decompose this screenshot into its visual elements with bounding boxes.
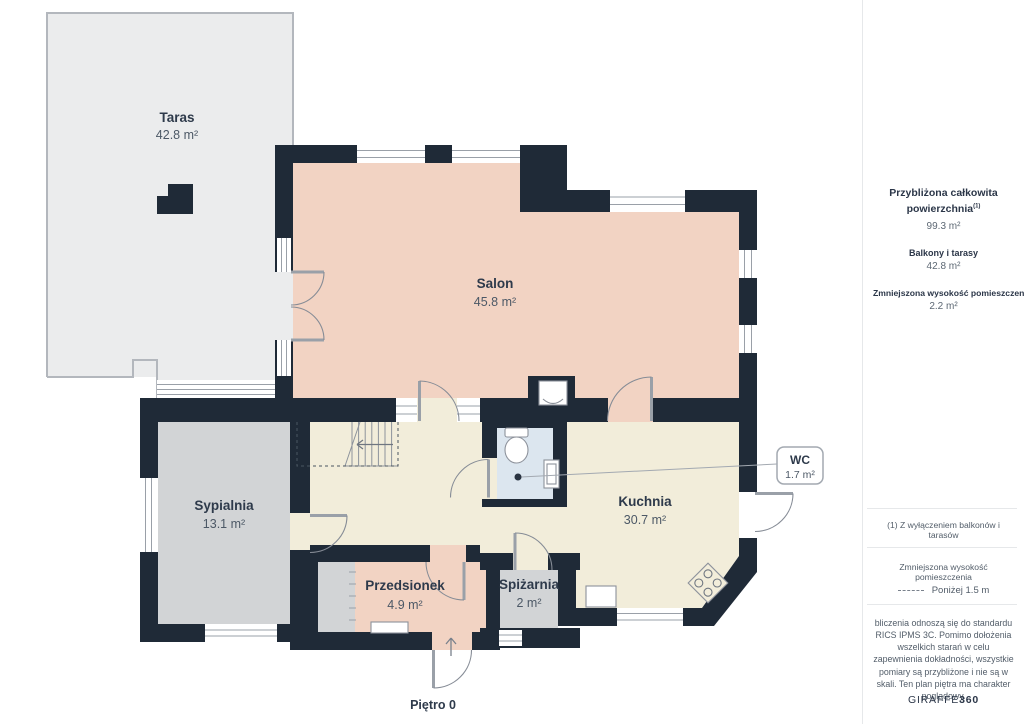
room-label-spizarnia: Spiżarnia [499, 577, 560, 592]
total-area-value: 99.3 m² [873, 221, 1014, 232]
room-label-salon: Salon [477, 276, 514, 291]
wc-marker-dot [515, 474, 522, 481]
balconies-label: Balkony i tarasy [873, 248, 1014, 258]
room-area-taras: 42.8 m² [156, 128, 198, 142]
footnote-text: (1) Z wyłączeniem balkonów i tarasów [863, 520, 1024, 540]
sink-icon [544, 460, 559, 488]
terrace-window [157, 380, 278, 399]
fireplace-icon [539, 381, 567, 405]
window [610, 190, 685, 212]
wc-room [497, 428, 559, 499]
divider [867, 604, 1017, 605]
door-kitchen-exterior [739, 492, 793, 538]
window [739, 325, 757, 353]
window [277, 340, 291, 376]
total-area-label: Przybliżona całkowita powierzchnia(1) [873, 186, 1014, 218]
legend-heading: Zmniejszona wysokość pomieszczenia [863, 562, 1024, 582]
room-label-kuchnia: Kuchnia [618, 494, 672, 509]
legend-dashed-label: Poniżej 1.5 m [932, 585, 990, 596]
room-label-taras: Taras [159, 110, 194, 125]
room-area-sypialnia: 13.1 m² [203, 517, 245, 531]
room-area-kuchnia: 30.7 m² [624, 513, 666, 527]
window [277, 238, 291, 272]
disclaimer-text: bliczenia odnoszą się do standardu RICS … [863, 617, 1024, 702]
wardrobe [318, 562, 356, 632]
entrance-door [432, 632, 472, 688]
floor-plan-canvas: WC 1.7 m² Taras 42.8 m² Salon 45.8 m² Sy… [0, 0, 862, 724]
area-summary: Przybliżona całkowita powierzchnia(1) 99… [863, 186, 1024, 312]
balconies-value: 42.8 m² [873, 261, 1014, 272]
reduced-height-value: 2.2 m² [873, 301, 1014, 312]
room-area-salon: 45.8 m² [474, 295, 516, 309]
window [140, 478, 158, 552]
brand-name: GIRAFFE [908, 694, 959, 706]
room-area-spizarnia: 2 m² [517, 596, 542, 610]
divider [867, 547, 1017, 548]
window [357, 145, 425, 163]
room-area-przedsionek: 4.9 m² [387, 598, 422, 612]
room-label-wc: WC [790, 453, 810, 467]
brand-suffix: 360 [959, 694, 979, 706]
room-label-przedsionek: Przedsionek [365, 578, 445, 593]
interior-window [457, 398, 480, 422]
toilet-icon [505, 428, 528, 463]
window [617, 608, 683, 626]
room-area-wc: 1.7 m² [785, 469, 815, 481]
summary-sidebar: Przybliżona całkowita powierzchnia(1) 99… [862, 0, 1024, 724]
room-label-sypialnia: Sypialnia [194, 498, 254, 513]
terrace [47, 13, 293, 399]
floor-label: Piętro 0 [410, 698, 456, 712]
dashed-line-swatch [898, 590, 924, 591]
kitchen-sink-icon [586, 586, 616, 607]
divider [867, 508, 1017, 509]
entry-furniture [371, 622, 408, 633]
interior-window [396, 398, 417, 422]
window [452, 145, 520, 163]
footnote-marker: (1) [973, 203, 980, 209]
reduced-height-label: Zmniejszona wysokość pomieszczenia [873, 288, 1014, 298]
legend-row: Poniżej 1.5 m [863, 585, 1024, 596]
giraffe360-logo: GIRAFFE360 [863, 694, 1024, 706]
window [739, 250, 757, 278]
window [205, 624, 277, 642]
window [499, 630, 522, 646]
floor-plan-page: WC 1.7 m² Taras 42.8 m² Salon 45.8 m² Sy… [0, 0, 1024, 724]
